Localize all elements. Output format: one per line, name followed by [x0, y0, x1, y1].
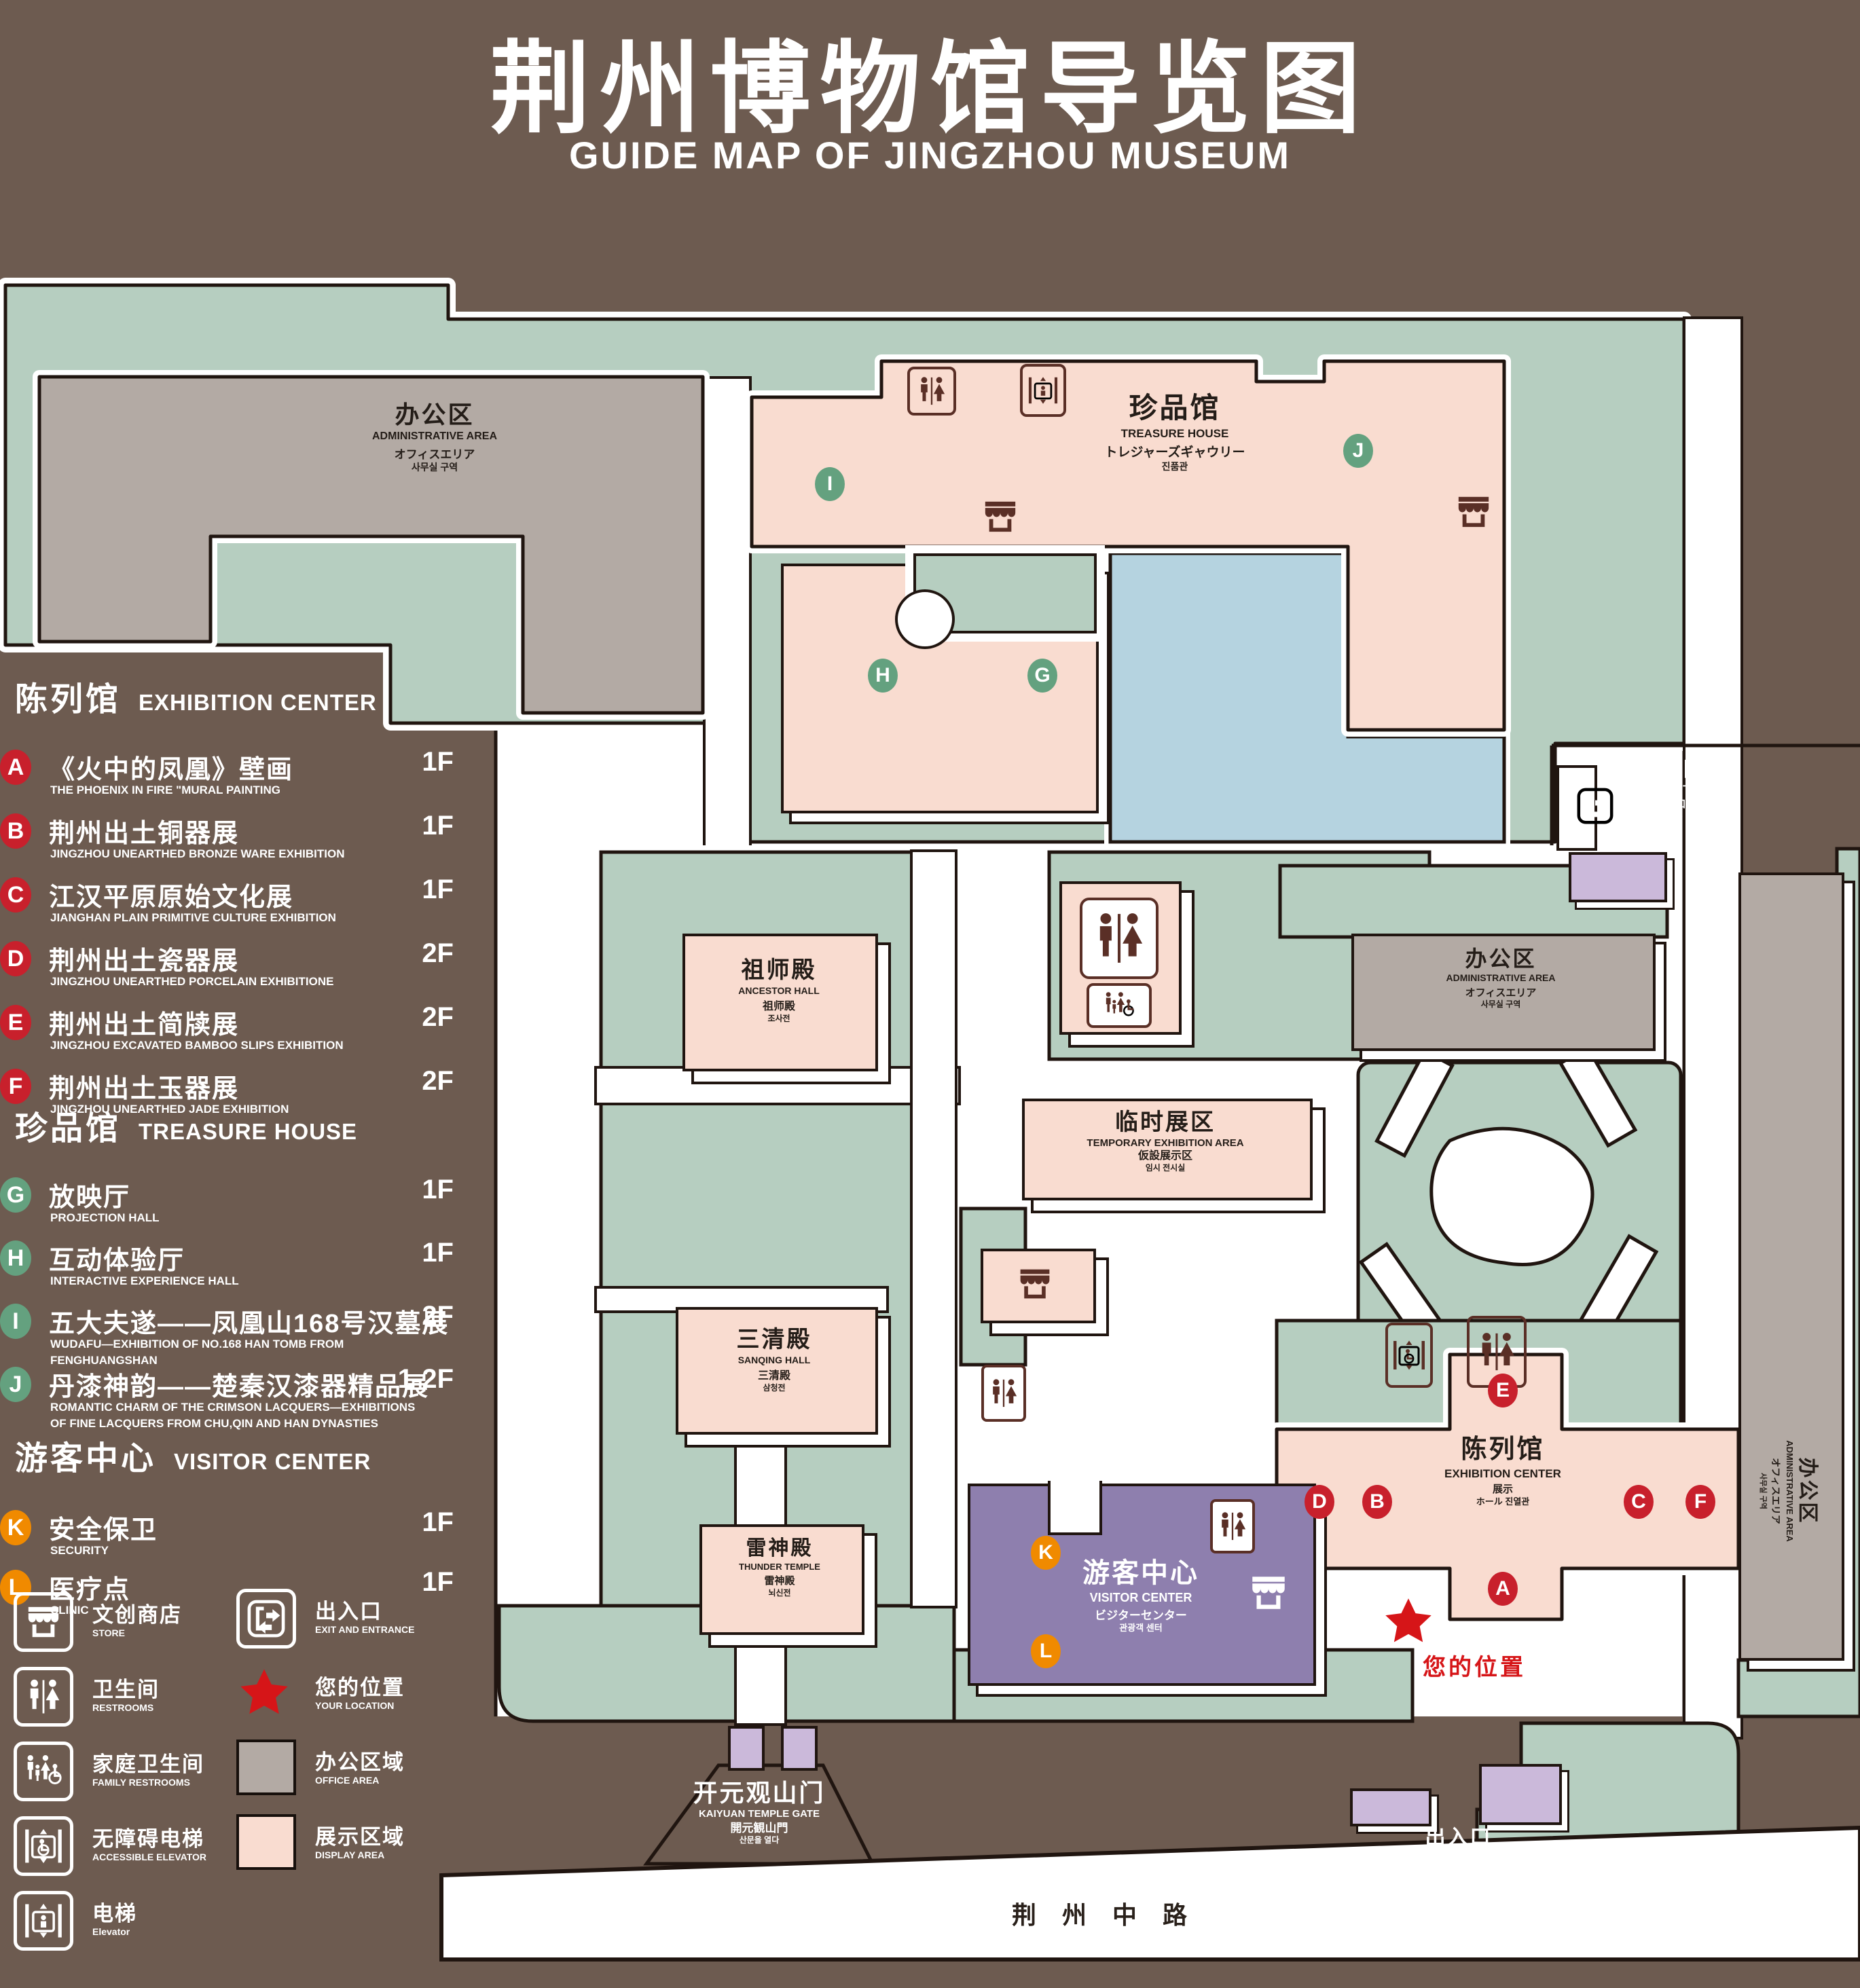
- legend-item-floor: 1F: [422, 1238, 454, 1268]
- ticket-booth: [1479, 1764, 1562, 1825]
- legend-symbol-subtitle: RESTROOMS: [92, 1702, 153, 1713]
- store-icon: [1248, 1572, 1289, 1613]
- legend-section-treasure: 珍品馆 TREASURE HOUSE: [15, 1101, 357, 1149]
- exit-entrance-icon: [1577, 788, 1613, 824]
- legend-symbol-subtitle: ACCESSIBLE ELEVATOR: [92, 1852, 206, 1862]
- map-marker-letter: A: [1495, 1577, 1510, 1600]
- legend-item-floor: 2F: [422, 1301, 454, 1331]
- legend-item-floor: 2F: [422, 1002, 454, 1033]
- map-marker-letter: E: [1496, 1379, 1510, 1401]
- legend-item-subtitle: ROMANTIC CHARM OF THE CRIMSON LACQUERS—E…: [50, 1399, 431, 1432]
- legend-item: B 荆州出土铜器展 1F JINGZHOU UNEARTHED BRONZE W…: [0, 816, 462, 876]
- legend-item-floor: 1-2F: [398, 1364, 454, 1395]
- map-marker: A: [1488, 1572, 1518, 1606]
- legend-item-badge: E: [0, 1005, 31, 1040]
- legend-symbol-title: 家庭卫生间: [92, 1747, 204, 1778]
- map-marker: J: [1343, 434, 1373, 468]
- legend-item: J 丹漆神韵——楚秦汉漆器精品展 1-2F ROMANTIC CHARM OF …: [0, 1369, 462, 1429]
- legend-section-exhibition: 陈列馆 EXHIBITION CENTER: [15, 672, 377, 720]
- map-marker: G: [1027, 659, 1057, 693]
- store-icon: [1455, 493, 1493, 531]
- legend-item-title: 荆州出土玉器展: [49, 1067, 239, 1105]
- legend-item-badge: H: [0, 1240, 31, 1276]
- map-marker: K: [1031, 1536, 1061, 1570]
- map-marker-letter: J: [1353, 439, 1364, 462]
- legend-symbol-location: 您的位置 YOUR LOCATION: [236, 1665, 460, 1726]
- office-area-swatch: [236, 1739, 296, 1795]
- legend-item-floor: 1F: [422, 747, 454, 777]
- legend-item-badge: G: [0, 1177, 31, 1213]
- map-marker-letter: C: [1631, 1490, 1646, 1513]
- store-icon: [1017, 1266, 1053, 1302]
- gate-pillar: [781, 1726, 818, 1771]
- map-marker-letter: H: [875, 664, 890, 686]
- legend-symbol-title: 文创商店: [92, 1598, 182, 1628]
- map-marker: F: [1685, 1485, 1715, 1519]
- legend-item: G 放映厅 1F PROJECTION HALL: [0, 1180, 462, 1240]
- legend-symbol-display: 展示区域 DISPLAY AREA: [236, 1814, 460, 1875]
- restroom-icon: [981, 1365, 1026, 1422]
- legend-symbol-subtitle: STORE: [92, 1627, 125, 1638]
- page-title: 荆州博物馆导览图: [0, 7, 1860, 153]
- legend-symbol-icon: [14, 1742, 73, 1801]
- map-marker: D: [1305, 1485, 1334, 1519]
- visitor-center-notch: [1048, 1481, 1102, 1535]
- map-marker: I: [815, 467, 845, 501]
- legend-symbol-title: 电梯: [92, 1896, 137, 1927]
- legend-item-floor: 1F: [422, 875, 454, 905]
- legend-symbol-subtitle: FAMILY RESTROOMS: [92, 1777, 190, 1788]
- legend-item-badge: K: [0, 1510, 31, 1545]
- legend-item-subtitle: JIANGHAN PLAIN PRIMITIVE CULTURE EXHIBIT…: [50, 910, 431, 926]
- temporary-exhibition-label: 临时展区 TEMPORARY EXHIBITION AREA 仮設展示区 임시 …: [1023, 1108, 1308, 1173]
- map-marker-letter: D: [1312, 1490, 1327, 1513]
- map-marker-letter: G: [1034, 664, 1050, 686]
- legend-item-badge: A: [0, 750, 31, 785]
- exhibition-center-label: 陈列馆 EXHIBITION CENTER 展示 ホール 진열관: [1360, 1434, 1645, 1507]
- elevator-icon: [1020, 364, 1066, 417]
- legend-item-floor: 2F: [422, 1066, 454, 1097]
- legend-symbol: 电梯 Elevator: [14, 1891, 238, 1956]
- legend-item-subtitle: JINGZHOU UNEARTHED PORCELAIN EXHIBITIONE: [50, 974, 431, 990]
- legend-item-title: 五大夫遂——凤凰山168号汉墓展: [49, 1302, 449, 1340]
- map-marker-letter: B: [1370, 1490, 1385, 1513]
- legend-symbol: 无障碍电梯 ACCESSIBLE ELEVATOR: [14, 1816, 238, 1881]
- legend-item-floor: 2F: [422, 938, 454, 969]
- legend-symbol: 文创商店 STORE: [14, 1592, 238, 1657]
- map-marker: H: [868, 659, 898, 693]
- legend-item-title: 互动体验厅: [49, 1239, 185, 1276]
- admin-mid-label: 办公区 ADMINISTRATIVE AREA オフィスエリア 사무실 구역: [1351, 945, 1650, 1010]
- road-label: 荆州中路: [1012, 1896, 1213, 1931]
- gate-label: 开元观山门 KAIYUAN TEMPLE GATE 開元観山門 산문을 열다: [583, 1778, 936, 1845]
- legend-item-title: 荆州出土简牍展: [49, 1004, 239, 1041]
- page-subtitle: GUIDE MAP OF JINGZHOU MUSEUM: [0, 133, 1860, 177]
- legend-item-title: 荆州出土瓷器展: [49, 940, 239, 977]
- legend-item-badge: C: [0, 877, 31, 913]
- legend-item-title: 荆州出土铜器展: [49, 812, 239, 849]
- legend-symbol-title: 无障碍电梯: [92, 1822, 204, 1852]
- map-marker-letter: F: [1694, 1490, 1707, 1513]
- legend-item-subtitle: THE PHOENIX IN FIRE "MURAL PAINTING: [50, 782, 431, 798]
- legend-item-subtitle: INTERACTIVE EXPERIENCE HALL: [50, 1273, 431, 1289]
- accessible-elevator-icon: [1385, 1323, 1433, 1388]
- legend-symbol-icon: [14, 1891, 73, 1951]
- restroom-icon: [1080, 898, 1159, 979]
- your-location-label: 您的位置: [1423, 1649, 1526, 1682]
- legend-item-subtitle: JINGZHOU UNEARTHED BRONZE WARE EXHIBITIO…: [50, 846, 431, 862]
- legend-symbol-icon: [14, 1667, 73, 1727]
- pond-cove: [895, 589, 955, 649]
- legend-item: E 荆州出土简牍展 2F JINGZHOU EXCAVATED BAMBOO S…: [0, 1008, 462, 1067]
- map-marker: C: [1624, 1485, 1654, 1519]
- sanqing-hall-label: 三清殿 SANQING HALL 三清殿 삼청전: [676, 1325, 873, 1393]
- legend-item-badge: B: [0, 813, 31, 849]
- your-location-star: [1384, 1597, 1433, 1646]
- legend-symbol-title: 卫生间: [92, 1672, 160, 1703]
- legend-item-subtitle: SECURITY: [50, 1543, 431, 1559]
- map-marker-letter: I: [827, 473, 833, 495]
- legend-item: I 五大夫遂——凤凰山168号汉墓展 2F WUDAFU—EXHIBITION …: [0, 1306, 462, 1366]
- legend-item-subtitle: JINGZHOU EXCAVATED BAMBOO SLIPS EXHIBITI…: [50, 1037, 431, 1054]
- ticket-booth: [1350, 1788, 1432, 1826]
- map-marker: E: [1488, 1374, 1518, 1407]
- gate-pillar: [728, 1726, 765, 1771]
- ticket-booth: [1569, 852, 1667, 902]
- legend-item-subtitle: WUDAFU—EXHIBITION OF NO.168 HAN TOMB FRO…: [50, 1336, 431, 1369]
- legend-item-title: 江汉平原原始文化展: [49, 876, 293, 913]
- your-location-star-icon: [239, 1668, 289, 1718]
- legend-item-floor: 1F: [422, 1175, 454, 1205]
- exit-entrance-icon: [236, 1589, 296, 1649]
- legend-symbol: 家庭卫生间 FAMILY RESTROOMS: [14, 1742, 238, 1807]
- exit-se-label: 出入口 EXIT AND ENTRANCE 出入口 출입구: [1330, 1825, 1588, 1885]
- legend-symbol-icon: [14, 1592, 73, 1652]
- map-marker: L: [1031, 1634, 1061, 1668]
- legend-symbol-icon: [14, 1816, 73, 1876]
- legend-item-badge: I: [0, 1304, 31, 1339]
- admin-east-building: 办公区 ADMINISTRATIVE AREA オフィスエリア 사무실 구역: [1738, 872, 1844, 1661]
- legend-item-title: 《火中的凤凰》壁画: [49, 748, 293, 786]
- map-marker-letter: K: [1038, 1541, 1053, 1564]
- display-area-swatch: [236, 1814, 296, 1870]
- legend-item: A 《火中的凤凰》壁画 1F THE PHOENIX IN FIRE "MURA…: [0, 752, 462, 812]
- legend-item-badge: F: [0, 1069, 31, 1104]
- legend-item: H 互动体验厅 1F INTERACTIVE EXPERIENCE HALL: [0, 1243, 462, 1303]
- admin-east-label: 办公区 ADMINISTRATIVE AREA オフィスエリア 사무실 구역: [1758, 1440, 1825, 1542]
- map-marker-letter: L: [1040, 1640, 1052, 1662]
- restroom-icon: [907, 367, 956, 416]
- family-restroom-icon: [1087, 983, 1152, 1028]
- legend-item-title: 丹漆神韵——楚秦汉漆器精品展: [49, 1365, 429, 1403]
- ancestor-hall-label: 祖师殿 ANCESTOR HALL 祖师殿 조사전: [684, 956, 874, 1024]
- admin-nw-label: 办公区 ADMINISTRATIVE AREA オフィスエリア 사무실 구역: [244, 399, 625, 474]
- legend-section-visitor: 游客中心 VISITOR CENTER: [15, 1431, 371, 1479]
- legend-item-subtitle: PROJECTION HALL: [50, 1210, 431, 1226]
- legend-symbol-subtitle: Elevator: [92, 1926, 130, 1937]
- legend-item-badge: D: [0, 941, 31, 976]
- legend-symbol: 卫生间 RESTROOMS: [14, 1667, 238, 1732]
- legend-item-floor: 1F: [422, 1507, 454, 1538]
- legend-item: C 江汉平原原始文化展 1F JIANGHAN PLAIN PRIMITIVE …: [0, 880, 462, 940]
- store-icon: [981, 498, 1019, 536]
- thunder-temple-label: 雷神殿 THUNDER TEMPLE 雷神殿 뇌신전: [700, 1536, 860, 1598]
- legend-symbol-exit: 出入口 EXIT AND ENTRANCE: [236, 1589, 460, 1650]
- map-marker: B: [1362, 1485, 1392, 1519]
- legend-symbol-office: 办公区域 OFFICE AREA: [236, 1739, 460, 1801]
- legend-item-title: 放映厅: [49, 1176, 130, 1213]
- legend-item-badge: J: [0, 1367, 31, 1402]
- legend-item-title: 安全保卫: [49, 1509, 158, 1546]
- legend-item-floor: 1F: [422, 811, 454, 841]
- restroom-icon: [1210, 1499, 1255, 1553]
- legend-item: K 安全保卫 1F SECURITY: [0, 1513, 462, 1572]
- legend-item: D 荆州出土瓷器展 2F JINGZHOU UNEARTHED PORCELAI…: [0, 944, 462, 1004]
